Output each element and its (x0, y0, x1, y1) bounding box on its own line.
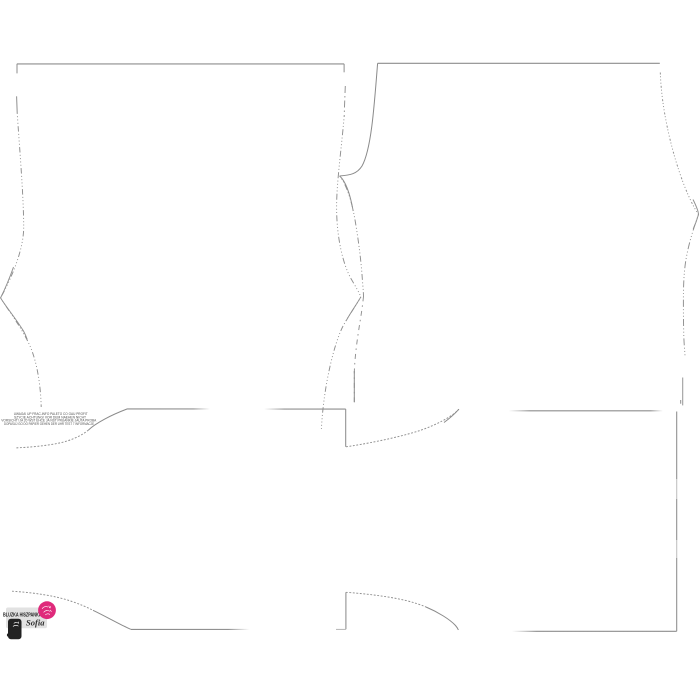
svg-text:Sofia: Sofia (26, 619, 45, 628)
svg-text:BLUZKA HISZPANKA: BLUZKA HISZPANKA (3, 612, 42, 618)
svg-text:DOPASUJ GO DO PAPIER GEHEN DER: DOPASUJ GO DO PAPIER GEHEN DER UHR TEST … (4, 422, 94, 426)
